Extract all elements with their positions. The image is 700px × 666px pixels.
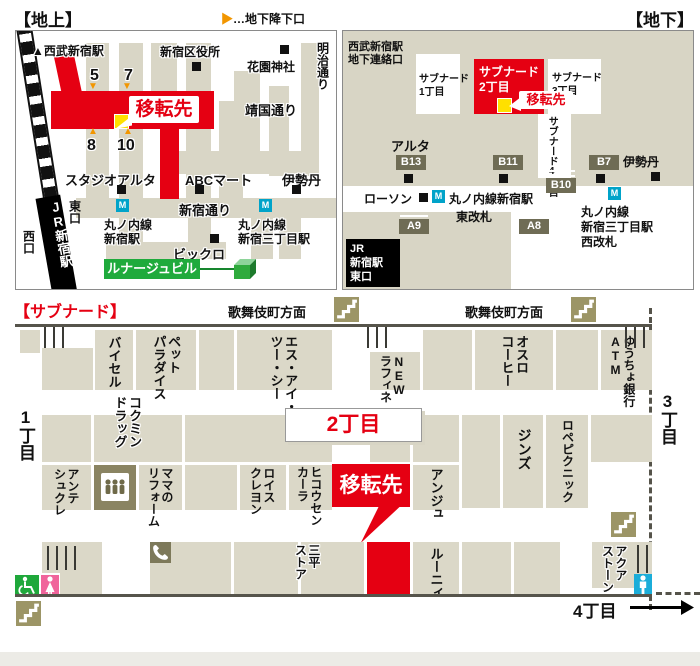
relocation-pointer: [355, 506, 403, 543]
marunouchi-shinjuku-label: 丸ノ内線新宿駅: [449, 190, 533, 207]
exit-b13-badge: B13: [396, 155, 426, 170]
ground-title: 【地上】: [14, 6, 82, 31]
legend-underground-entrance-icon: ▶: [221, 12, 233, 26]
chome4-arrowhead-icon: [681, 600, 694, 615]
shop-label: NEW ラフィネ: [378, 355, 405, 403]
subnade-title: 【サブナード】: [14, 298, 126, 322]
stairs-hatch: [625, 327, 651, 348]
shop-block: [42, 415, 91, 462]
chome2-box: 2丁目: [285, 408, 422, 442]
shop-label: コクミン ドラッグ: [112, 396, 141, 448]
exit-8-arrow-icon: ▲: [88, 126, 98, 137]
shop-label: オスロ コーヒー: [499, 335, 528, 387]
exit-10-label: 10: [117, 137, 135, 155]
street: [188, 218, 211, 242]
seibu-gate-label: 西武新宿駅 地下連絡口: [348, 41, 403, 67]
exit-10-arrow-icon: ▲: [123, 126, 133, 137]
hanazono-label: 花園神社: [247, 58, 295, 75]
shop-block: [20, 330, 40, 353]
lunage-building-icon: [234, 259, 258, 281]
stairs-hatch: [400, 210, 428, 218]
chome4-label: 4丁目: [573, 597, 616, 622]
shop-label: アンジュ: [428, 468, 443, 520]
chome4-arrow: [630, 606, 682, 609]
exit-b10-badge: B10: [546, 178, 576, 193]
ward-office-label: 新宿区役所: [160, 43, 220, 60]
shop-label: ママの リフォーム: [146, 467, 173, 527]
exit-b13-marker: [404, 174, 413, 183]
shop-block: [556, 330, 598, 390]
shop-block: [591, 415, 652, 462]
shinjuku-dori-label: 新宿通り: [179, 200, 231, 219]
relocation-label: 移転先: [129, 96, 199, 123]
ward-office-marker: [192, 62, 201, 71]
kabukicho-label: 歌舞伎町方面: [465, 302, 543, 321]
chome2-label: 2丁目: [286, 409, 421, 441]
metro-icon: M: [259, 199, 272, 212]
stairs-hatch: [637, 545, 650, 573]
shop-block: [60, 573, 102, 594]
lunage-label-text: ルナージュビル: [107, 261, 197, 276]
mall-top-wall: [15, 324, 652, 327]
shop-label: エス・アイ・ ツー・シー: [268, 335, 297, 413]
exit-5-arrow-icon: ▼: [88, 81, 98, 92]
higashi-gate-label: 東改札: [456, 208, 492, 225]
footer-strip: [0, 652, 700, 666]
isetan-label: 伊勢丹: [282, 170, 321, 189]
seibu-shinjuku-label: ▲西武新宿駅: [32, 42, 104, 59]
studio-alta-label: スタジオアルタ: [65, 170, 156, 189]
shop-label: ヒコウセン カーラ: [295, 466, 322, 526]
yasukuni-dori-label: 靖国通り: [245, 100, 297, 119]
marunouchi-sanchome-label: 丸ノ内線 新宿三丁目駅: [238, 218, 310, 246]
relocation-map: 【地上】 ▶…地下降下口 JR新宿駅 東口 西口 移転先: [0, 0, 700, 666]
hanazono-marker: [280, 45, 289, 54]
alta-label: アルタ: [391, 136, 430, 155]
metro-icon: M: [116, 199, 129, 212]
stairs-icon: [334, 297, 359, 322]
isetan-label: 伊勢丹: [623, 153, 659, 170]
shop-block: [462, 542, 511, 594]
stairs-hatch: [44, 327, 70, 348]
shop-block: [42, 348, 93, 390]
relocation-label: 移転先: [519, 91, 573, 109]
shop-block: [185, 465, 237, 510]
metro-icon: M: [608, 187, 621, 200]
underground-title: 【地下】: [626, 6, 694, 31]
chome1-label: 1丁目: [16, 408, 35, 461]
lawson-label: ローソン: [364, 190, 412, 207]
jr-east-exit-label: JR 新宿駅 東口: [346, 239, 400, 284]
exit-b7-badge: B7: [589, 155, 619, 170]
shop-label: ルーニィ: [428, 547, 443, 599]
exit-8-label: 8: [87, 137, 96, 155]
shop-label: アクア ストーン: [600, 545, 627, 593]
phone-icon: [150, 542, 171, 563]
marunouchi-shinjuku-label: 丸ノ内線 新宿駅: [104, 218, 152, 246]
stairs-icon: [16, 601, 41, 626]
lunage-connector: [196, 268, 238, 270]
chome3-label: 3丁目: [658, 392, 677, 445]
cube-front: [234, 265, 250, 279]
jr-east-exit-box: JR 新宿駅 東口: [346, 239, 400, 287]
exit-b11-badge: B11: [493, 155, 523, 170]
marunouchi-sanchome-label: 丸ノ内線 新宿三丁目駅 西改札: [581, 205, 653, 250]
shop-label: バイセル: [106, 336, 121, 388]
ground-map: JR新宿駅 東口 西口 移転先 5 ▼ 7 ▼ ▲ 8 ▲ 10 ▲西武新宿駅 …: [15, 30, 337, 290]
shop-block: [199, 330, 234, 390]
underground-map: 西武新宿駅 地下連絡口 サブナード 1丁目 サブナード 2丁目 サブナード 3丁…: [342, 30, 694, 290]
relocation-label: 移転先: [332, 464, 410, 507]
west-exit-label: 西口: [21, 230, 34, 254]
shop-label: アンテ シュクレ: [52, 468, 79, 516]
kabukicho-label: 歌舞伎町方面: [228, 302, 306, 321]
shop-block: [514, 542, 560, 594]
stairs-icon: [571, 297, 596, 322]
stairs-icon: [611, 512, 636, 537]
exit-a9-badge: A9: [399, 219, 429, 234]
mall-bottom-dashed: [656, 592, 700, 595]
ground-legend: ▶…地下降下口: [221, 10, 305, 27]
shop-label: 三平 ストア: [293, 544, 320, 580]
stairs-hatch: [47, 546, 81, 570]
lawson-marker: [419, 193, 428, 202]
isetan-marker: [651, 172, 660, 181]
stairs-hatch: [520, 210, 548, 218]
meiji-dori-label: 明治通り: [315, 42, 328, 90]
exit-a8-badge: A8: [519, 219, 549, 234]
stairs-hatch: [367, 327, 393, 348]
lunage-label: ルナージュビル: [104, 259, 200, 279]
exit-7-arrow-icon: ▼: [122, 81, 132, 92]
exit-b7-marker: [596, 174, 605, 183]
elevator-icon: [94, 465, 136, 510]
shop-label: ジンズ: [516, 428, 532, 470]
east-exit-label: 東口: [67, 200, 80, 224]
shop-label: ペット パラダイス: [151, 335, 180, 400]
shop-block: [423, 330, 472, 390]
isetan-marker: [292, 185, 301, 194]
relocation-marker: [497, 98, 512, 113]
abc-mart-marker: [195, 185, 204, 194]
relocation-destination-block: [367, 542, 410, 594]
shop-label: ロペピクニック: [560, 419, 573, 503]
subnade-1-label: サブナード 1丁目: [419, 73, 469, 99]
metro-icon: M: [432, 190, 445, 203]
bicqlo-marker: [210, 234, 219, 243]
relocation-label-box: 移転先: [332, 464, 410, 507]
mall-bottom-wall: [15, 594, 652, 597]
stairs-hatch: [547, 170, 575, 178]
subnade-footprint-stripe: [160, 129, 179, 199]
men-restroom-icon: [634, 574, 652, 596]
shop-label: ロイス クレヨン: [248, 467, 275, 515]
shop-block: [234, 542, 298, 594]
exit-b11-marker: [499, 174, 508, 183]
legend-text: …地下降下口: [233, 12, 305, 26]
shop-block: [462, 415, 500, 508]
studio-alta-marker: [117, 185, 126, 194]
